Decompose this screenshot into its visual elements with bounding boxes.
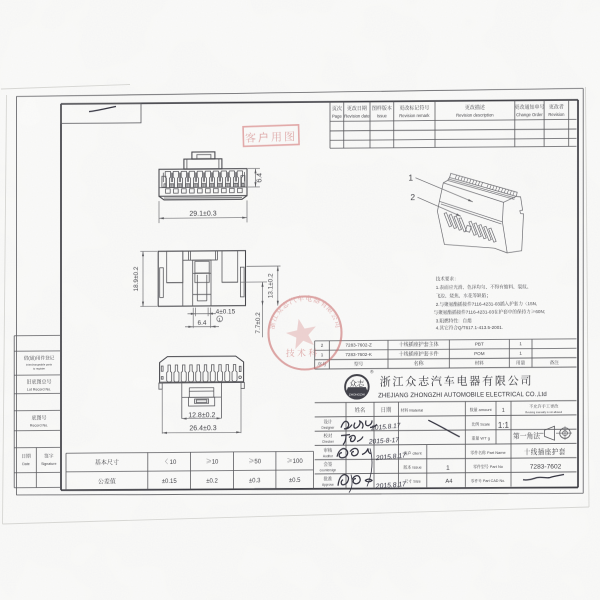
- svg-text:2015-8-17: 2015-8-17: [368, 434, 400, 446]
- svg-text:Date: Date: [22, 462, 30, 467]
- svg-text:PBT: PBT: [475, 342, 484, 348]
- svg-text:26.4±0.3: 26.4±0.3: [189, 423, 216, 433]
- svg-text:1:1: 1:1: [498, 420, 510, 431]
- svg-text:页次: 页次: [332, 105, 342, 112]
- svg-text:1: 1: [519, 341, 522, 347]
- svg-text:名称: 名称: [414, 360, 425, 367]
- svg-text:更改标记符号: 更改标记符号: [399, 104, 429, 111]
- svg-text:2: 2: [410, 191, 415, 203]
- svg-text:比例 Scale: 比例 Scale: [471, 421, 490, 427]
- svg-text:客户 client: 客户 client: [404, 450, 423, 456]
- svg-text:十线插座护套主体: 十线插座护套主体: [399, 341, 439, 348]
- svg-text:型号: 型号: [354, 360, 364, 367]
- svg-text:十线插座护套: 十线插座护套: [524, 446, 566, 456]
- svg-text:Revision: Revision: [548, 112, 565, 118]
- svg-text:Change Order: Change Order: [516, 112, 543, 118]
- svg-text:to register: to register: [33, 367, 45, 371]
- svg-text:Revision remark: Revision remark: [399, 113, 430, 119]
- svg-text:技术要求：: 技术要求：: [436, 275, 459, 282]
- svg-text:≥100: ≥100: [287, 456, 304, 465]
- svg-text:十线插座护套卡件: 十线插座护套卡件: [399, 351, 439, 358]
- svg-text:4±0.15: 4±0.15: [216, 307, 236, 316]
- svg-text:3.阻燃特性：自熄: 3.阻燃特性：自熄: [436, 317, 472, 324]
- svg-text:第一角法: 第一角法: [513, 430, 540, 440]
- svg-text:重量 WT´g: 重量 WT´g: [472, 436, 490, 442]
- svg-text:Approve: Approve: [322, 482, 334, 487]
- svg-text:Auditor: Auditor: [323, 453, 334, 458]
- svg-text:7283-7602-Z: 7283-7602-Z: [345, 343, 371, 349]
- svg-text:更改日期: 更改日期: [347, 105, 367, 112]
- svg-text:1: 1: [519, 351, 522, 357]
- svg-text:数量 amount: 数量 amount: [470, 407, 493, 413]
- svg-text:客户用图: 客户用图: [245, 128, 297, 146]
- svg-text:2.与聚氨酯插接件7116-4231-03插入护套力〈15N: 2.与聚氨酯插接件7116-4231-03插入护套力〈15N,: [436, 300, 538, 308]
- svg-text:13.1±0.2: 13.1±0.2: [265, 273, 274, 298]
- svg-text:countersign: countersign: [320, 467, 337, 472]
- svg-text:材料: 材料: [475, 360, 485, 367]
- svg-text:≥10: ≥10: [206, 457, 219, 466]
- svg-text:1: 1: [321, 352, 324, 358]
- svg-text:18.9±0.2: 18.9±0.2: [131, 266, 140, 291]
- svg-text:签字: 签字: [44, 452, 54, 459]
- svg-text:零件名称 Part Name: 零件名称 Part Name: [470, 450, 505, 456]
- svg-text:Signature: Signature: [41, 462, 56, 467]
- svg-text:技 术 科: 技 术 科: [286, 346, 317, 359]
- svg-text:Revising manually is not allow: Revising manually is not allowed: [525, 410, 562, 414]
- svg-text:旧底图总号: 旧底图总号: [26, 378, 51, 385]
- svg-text:零件型号 Part No: 零件型号 Part No: [473, 464, 503, 470]
- svg-text:更改通知单号: 更改通知单号: [514, 104, 544, 111]
- svg-text:Record No.: Record No.: [30, 423, 48, 428]
- svg-text:2: 2: [321, 343, 324, 349]
- svg-text:4.其它符合Q/T617.1-413.5-2001.: 4.其它符合Q/T617.1-413.5-2001.: [436, 324, 503, 332]
- svg-text:1: 1: [408, 172, 413, 184]
- svg-text:零件号 Part CAD No.: 零件号 Part CAD No.: [471, 478, 505, 484]
- svg-text:1: 1: [218, 317, 221, 323]
- svg-text:7283-7602: 7283-7602: [530, 460, 562, 470]
- svg-text:不允许手工更改: 不允许手工更改: [529, 402, 559, 409]
- svg-text:12.8±0.2: 12.8±0.2: [188, 410, 215, 420]
- svg-text:6.4: 6.4: [255, 173, 265, 183]
- svg-text:图样版本: 图样版本: [372, 105, 392, 112]
- svg-text:POM: POM: [474, 351, 485, 357]
- svg-text:±0.5: ±0.5: [289, 475, 301, 484]
- svg-text:众志: 众志: [350, 378, 365, 389]
- svg-text:Revision date: Revision date: [344, 114, 370, 120]
- svg-text:Lot Record No.: Lot Record No.: [27, 387, 51, 392]
- svg-text:浙江众志汽车电器有限公司: 浙江众志汽车电器有限公司: [380, 372, 534, 389]
- svg-text:材料 Material: 材料 Material: [401, 407, 424, 413]
- svg-text:Revision description: Revision description: [456, 113, 494, 119]
- svg-text:Page: Page: [332, 114, 342, 120]
- svg-text:姓名: 姓名: [355, 406, 366, 414]
- svg-text:日期: 日期: [21, 453, 31, 460]
- svg-text:±0.15: ±0.15: [162, 476, 178, 485]
- svg-text:〈 10: 〈 10: [162, 457, 177, 466]
- svg-text:29.1±0.3: 29.1±0.3: [189, 209, 216, 219]
- svg-text:飞边、烧焦、水花等缺陷；: 飞边、烧焦、水花等缺陷；: [436, 292, 491, 299]
- svg-text:≥50: ≥50: [248, 456, 261, 465]
- svg-text:更改者: 更改者: [549, 103, 564, 110]
- svg-text:备注: 备注: [550, 359, 560, 366]
- svg-text:版本 Issue: 版本 Issue: [404, 465, 422, 471]
- svg-text:Checker: Checker: [322, 439, 335, 444]
- svg-text:7.7±0.2: 7.7±0.2: [253, 312, 262, 334]
- svg-text:Designer: Designer: [322, 425, 336, 430]
- svg-text:±0.2: ±0.2: [206, 476, 218, 485]
- svg-text:借(通)用件登记: 借(通)用件登记: [24, 354, 55, 361]
- svg-text:1: 1: [446, 463, 450, 472]
- svg-text:与聚氨酯插接件7116-4231-03在护套中的保持力≥60: 与聚氨酯插接件7116-4231-03在护套中的保持力≥60N;: [434, 308, 545, 316]
- svg-text:公差值: 公差值: [98, 476, 116, 485]
- svg-text:Issue: Issue: [377, 114, 388, 120]
- svg-text:更改描述: 更改描述: [465, 104, 485, 111]
- svg-text:7283-7602-K: 7283-7602-K: [345, 352, 372, 358]
- svg-text:1: 1: [502, 406, 505, 414]
- svg-text:ZHONGZHI: ZHONGZHI: [349, 391, 365, 396]
- svg-text:尺寸 Size: 尺寸 Size: [404, 479, 420, 485]
- svg-text:A4: A4: [445, 476, 453, 485]
- svg-text:日期: 日期: [381, 406, 392, 414]
- svg-text:ZHEJIANG ZHONGZHI AUTOMOBILE E: ZHEJIANG ZHONGZHI AUTOMOBILE ELECTRICAL …: [378, 389, 547, 399]
- svg-text:6.4: 6.4: [198, 318, 207, 327]
- svg-text:用量: 用量: [516, 359, 526, 366]
- svg-text:基本尺寸: 基本尺寸: [95, 457, 119, 466]
- svg-text:底图号: 底图号: [31, 414, 46, 421]
- svg-text:1.表面应光滑、色泽均匀、不得有缩料、裂纹、: 1.表面应光滑、色泽均匀、不得有缩料、裂纹、: [436, 283, 532, 291]
- svg-text:±0.3: ±0.3: [249, 475, 261, 484]
